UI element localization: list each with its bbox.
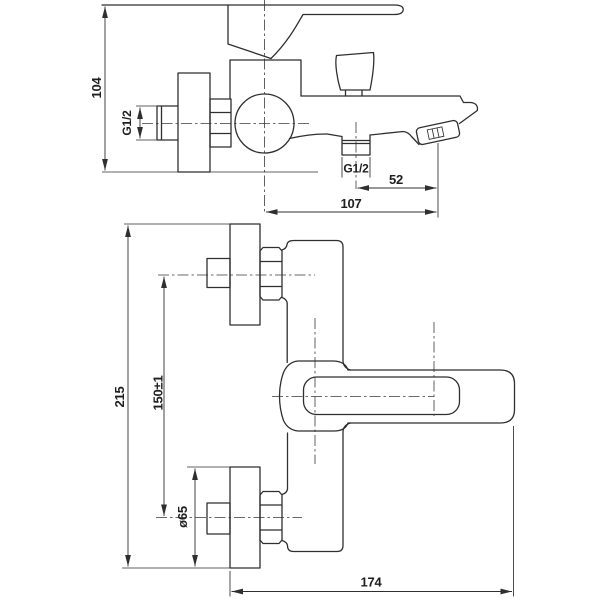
dim-107-label: 107	[340, 196, 361, 211]
drawing-canvas: 104 G1/2 G1/2 52 107	[0, 0, 600, 600]
dim-215-label: 215	[112, 386, 127, 407]
dim-outlet-thread: G1/2	[342, 157, 370, 178]
faucet-technical-drawing: 104 G1/2 G1/2 52 107	[0, 0, 600, 600]
dim-174-label: 174	[360, 575, 382, 590]
dim-65-label: ø65	[175, 506, 190, 528]
dim-150: 150±1	[151, 277, 166, 517]
dim-52-label: 52	[389, 172, 403, 187]
mounting-nut-side	[210, 99, 231, 147]
body-column	[282, 241, 351, 552]
front-view: 215 150±1 ø65 174	[112, 224, 515, 597]
side-view: 104 G1/2 G1/2 52 107	[89, 0, 477, 218]
dim-wall-thread: G1/2	[120, 106, 158, 140]
aerator	[416, 120, 461, 145]
spout-underside	[290, 132, 420, 156]
dim-65: ø65	[175, 467, 230, 567]
handle-lever-inner	[304, 377, 460, 415]
dim-outlet-thread-label: G1/2	[343, 162, 369, 176]
dim-174: 174	[230, 426, 514, 597]
lower-wall-stub	[207, 503, 230, 534]
wall-thread-pipe	[157, 106, 178, 140]
upper-wall-stub	[207, 259, 230, 288]
dim-104-label: 104	[89, 76, 104, 98]
handle-cap-side	[228, 5, 271, 59]
spout-deck	[301, 96, 477, 124]
upper-escutcheon	[230, 224, 260, 325]
dim-150-label: 150±1	[151, 375, 166, 410]
handle-lever-side	[102, 5, 403, 59]
escutcheon-side	[178, 73, 210, 172]
upper-nut	[260, 248, 282, 301]
body-top-side	[230, 60, 301, 99]
dim-104: 104	[89, 7, 318, 173]
dim-107: 107	[266, 196, 437, 212]
dim-wall-thread-label: G1/2	[120, 110, 134, 136]
diverter-knob	[336, 53, 374, 97]
